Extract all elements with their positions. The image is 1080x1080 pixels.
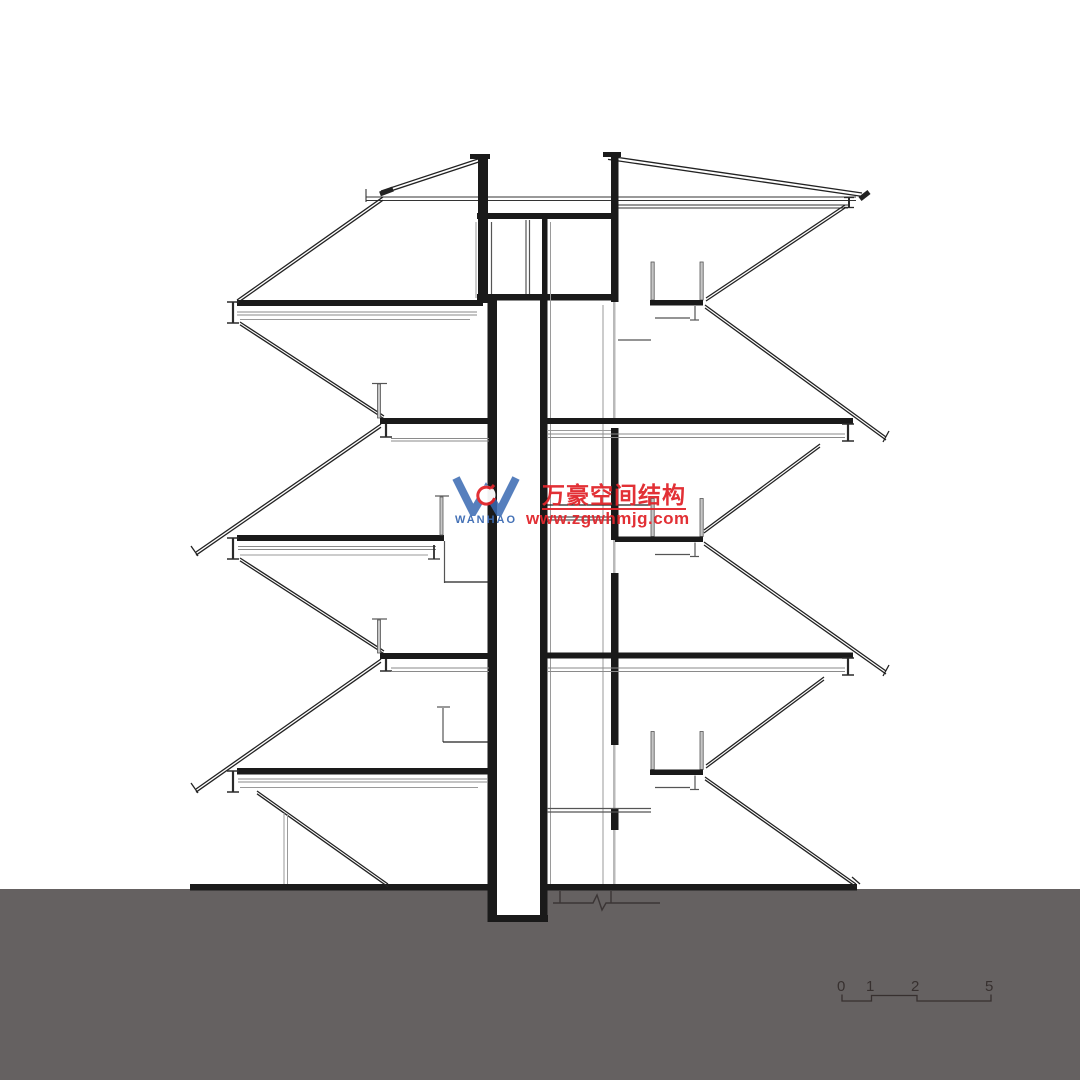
scale-label-2: 2 xyxy=(911,978,919,995)
left-floors xyxy=(191,197,492,887)
building-section-svg xyxy=(0,0,1080,1080)
watermark-logo-text: WANHAO xyxy=(451,514,521,526)
watermark-url: www.zgwhmjg.com xyxy=(526,509,690,529)
wanhao-logo-icon xyxy=(451,474,521,516)
scale-label-1: 1 xyxy=(866,978,874,995)
right-floors xyxy=(547,205,889,887)
page: { "watermark": { "logo_text": "WANHAO", … xyxy=(0,0,1080,1080)
section-drawing-canvas xyxy=(0,0,1080,1080)
scale-label-5: 5 xyxy=(985,978,993,995)
scale-label-0: 0 xyxy=(837,978,845,995)
core-shaft xyxy=(476,156,619,922)
watermark-brand-chinese: 万豪空间结构 xyxy=(542,483,686,510)
